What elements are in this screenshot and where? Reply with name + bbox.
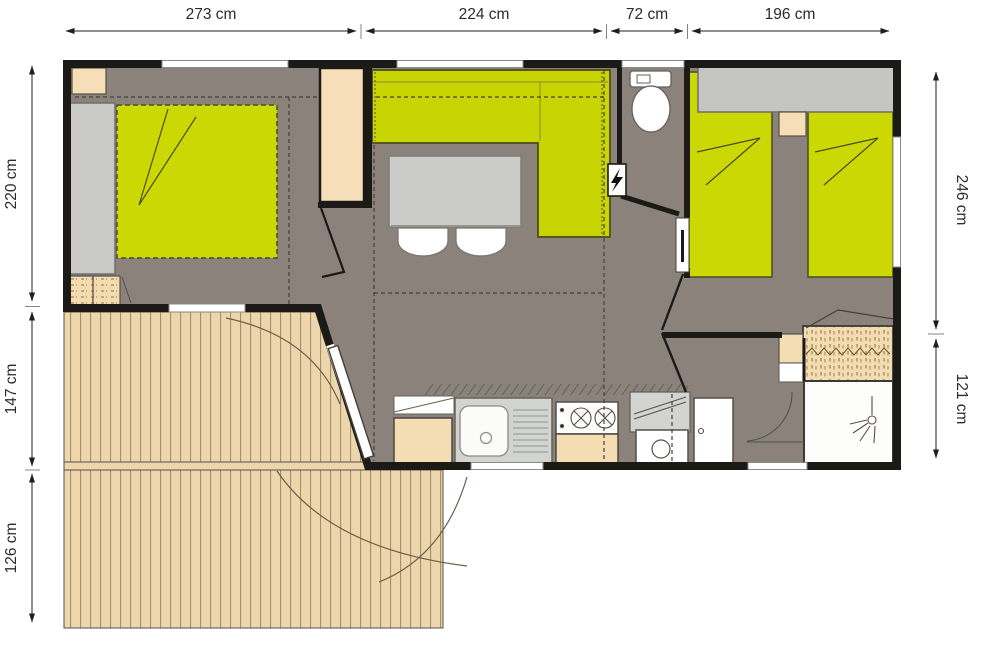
window-master-top — [162, 61, 288, 68]
kitchen-cabinet-under-hob — [556, 434, 618, 464]
living-area — [372, 70, 610, 256]
bathroom-cabinet-white — [779, 363, 803, 382]
storage-chest-right — [93, 276, 120, 306]
dining-table — [389, 156, 521, 227]
hob-unit — [556, 402, 618, 434]
sliding-door-panel — [681, 230, 684, 262]
dining-chair-right — [456, 228, 506, 256]
wc-wall-left — [617, 62, 622, 165]
sliding-door-twin-room — [676, 218, 689, 272]
window-master-bottom — [169, 304, 245, 312]
floor-plan-drawing: 273 cm 224 cm 72 cm 196 cm 220 cm 147 cm… — [0, 0, 1000, 650]
deck-upper — [64, 312, 367, 462]
floor-plan-page: 273 cm 224 cm 72 cm 196 cm 220 cm 147 cm… — [0, 0, 1000, 650]
window-twin-right-wall — [893, 137, 901, 267]
opening-rear-door — [748, 463, 807, 470]
bathroom-top-wall — [662, 332, 782, 338]
wardrobe — [69, 103, 115, 274]
overhead-shelf — [698, 67, 895, 112]
dim-label-121: 121 cm — [953, 374, 970, 425]
dim-label-126: 126 cm — [3, 523, 20, 574]
rear-door-leaf — [694, 398, 733, 463]
fridge-handle — [652, 440, 670, 458]
nightstand — [779, 112, 806, 136]
toilet-bowl — [632, 86, 670, 132]
dining-chair-left — [398, 228, 448, 256]
dim-label-246: 246 cm — [953, 175, 970, 226]
window-wc-top — [622, 61, 684, 68]
dim-label-273: 273 cm — [186, 6, 237, 23]
sink-basin — [460, 406, 508, 456]
sink-drain — [481, 433, 492, 444]
dim-label-224: 224 cm — [459, 6, 510, 23]
double-bed — [117, 105, 277, 258]
window-kitchen-bottom — [471, 463, 543, 470]
dim-label-196: 196 cm — [765, 6, 816, 23]
wardrobe-column-base-wall — [318, 202, 372, 208]
kitchen-cabinet-left — [394, 418, 452, 464]
dim-label-220: 220 cm — [3, 159, 20, 210]
deck-lower — [64, 470, 443, 628]
wardrobe-column — [320, 68, 364, 202]
wc-wall-right — [684, 60, 690, 218]
window-living-top — [397, 61, 523, 68]
bathroom-cabinet — [779, 334, 803, 363]
dim-label-72: 72 cm — [626, 6, 668, 23]
wc-room — [630, 71, 671, 132]
electrical-panel — [608, 164, 626, 196]
shower-tray — [804, 381, 893, 464]
bedside-cabinet-top-left — [72, 68, 106, 94]
dim-label-147: 147 cm — [3, 364, 20, 415]
